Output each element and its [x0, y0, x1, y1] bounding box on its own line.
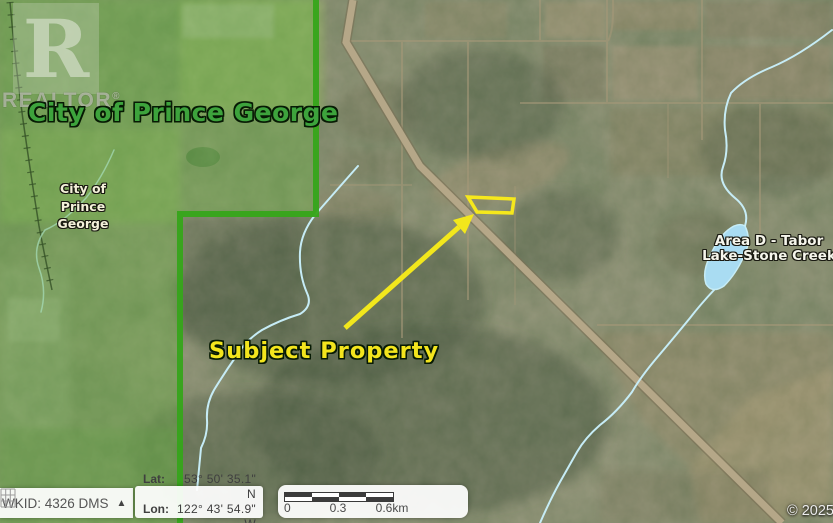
map-viewport: R REALTOR® City of Prince George City of… — [0, 0, 833, 523]
realtor-logo: R — [13, 3, 99, 94]
city-label-large: City of Prince George — [28, 98, 338, 127]
longitude-row: Lon: 122° 43' 54.9" W — [143, 502, 256, 523]
lon-value: 122° 43' 54.9" W — [173, 502, 256, 523]
scale-tick-end: 0.6km — [376, 501, 409, 515]
scale-tick-start: 0 — [284, 501, 291, 515]
lat-value: 53° 50' 35.1" N — [173, 472, 256, 502]
lon-label: Lon: — [143, 502, 173, 523]
graticule-globe-icon — [0, 488, 16, 508]
coordinate-readout: Lat: 53° 50' 35.1" N Lon: 122° 43' 54.9"… — [135, 486, 263, 518]
subject-property-label: Subject Property — [209, 338, 439, 364]
latitude-row: Lat: 53° 50' 35.1" N — [143, 472, 256, 502]
wkid-label: WKID: 4326 DMS — [2, 496, 109, 511]
scale-bar-panel: 0 0.3 0.6km — [278, 485, 468, 518]
area-d-label: Area D - Tabor Lake-Stone Creek — [688, 234, 833, 263]
copyright-notice: © 2025 — [787, 503, 833, 519]
area-d-label-line2: Lake-Stone Creek — [688, 249, 833, 264]
city-label-small: City of Prince George — [45, 180, 121, 233]
scale-labels: 0 0.3 0.6km — [278, 501, 468, 516]
scale-tick-middle: 0.3 — [330, 501, 347, 515]
realtor-logo-letter: R — [23, 9, 89, 89]
wkid-selector[interactable]: WKID: 4326 DMS ▲ — [0, 488, 133, 518]
area-d-label-line1: Area D - Tabor — [688, 234, 833, 249]
wkid-dropdown-arrow-icon: ▲ — [117, 498, 127, 509]
city-label-small-line1: City of — [45, 180, 121, 198]
city-label-small-line3: George — [45, 215, 121, 233]
lat-label: Lat: — [143, 472, 173, 502]
city-label-small-line2: Prince — [45, 198, 121, 216]
